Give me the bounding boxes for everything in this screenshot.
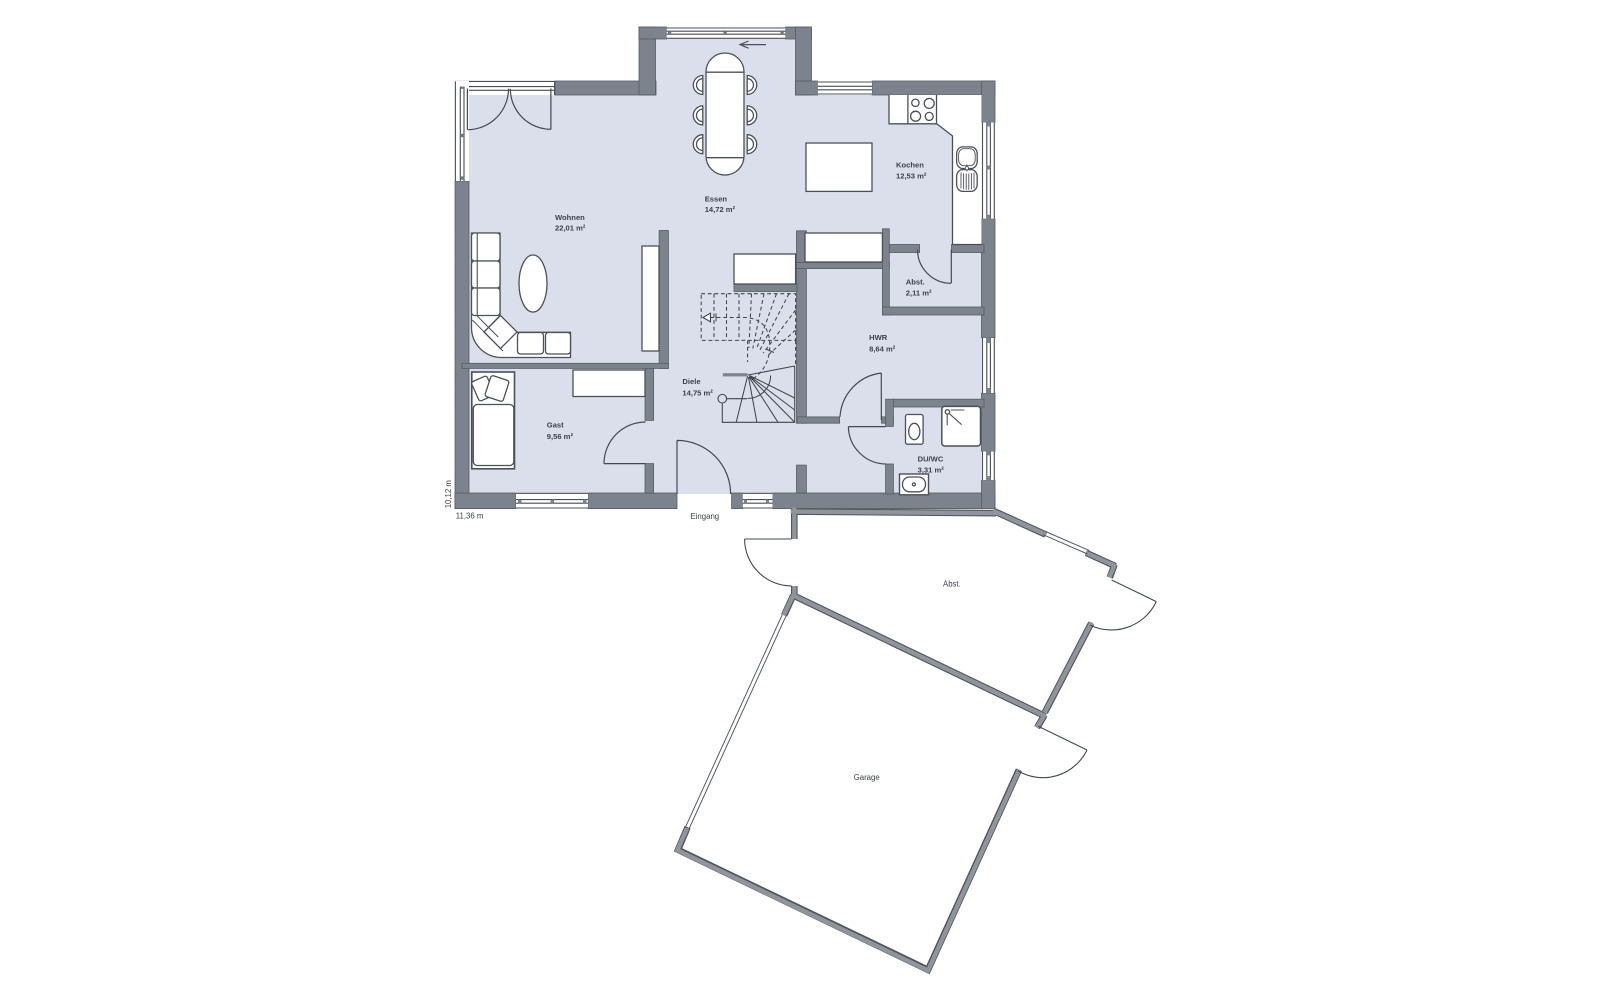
svg-text:Abst.: Abst.	[943, 579, 961, 588]
svg-text:2,11 m²: 2,11 m²	[906, 289, 932, 298]
svg-text:9,56 m²: 9,56 m²	[547, 432, 574, 441]
svg-text:Wohnen: Wohnen	[555, 213, 585, 222]
svg-text:Diele: Diele	[682, 377, 700, 386]
svg-text:11,36 m: 11,36 m	[456, 511, 484, 520]
svg-text:14,72 m²: 14,72 m²	[705, 205, 736, 214]
svg-text:14,75 m²: 14,75 m²	[682, 388, 713, 397]
svg-text:Eingang: Eingang	[691, 512, 720, 521]
svg-text:Kochen: Kochen	[896, 161, 924, 170]
svg-text:8,64 m²: 8,64 m²	[869, 344, 896, 353]
svg-text:Abst.: Abst.	[906, 278, 925, 287]
svg-text:Garage: Garage	[854, 773, 880, 782]
svg-text:10,12 m: 10,12 m	[444, 480, 453, 508]
svg-text:12,53 m²: 12,53 m²	[896, 172, 927, 181]
svg-text:22,01 m²: 22,01 m²	[555, 224, 586, 233]
svg-text:HWR: HWR	[869, 333, 888, 342]
svg-text:Essen: Essen	[705, 195, 728, 204]
svg-text:Gast: Gast	[547, 421, 564, 430]
svg-text:3,31 m²: 3,31 m²	[918, 466, 945, 475]
svg-text:DU/WC: DU/WC	[918, 455, 944, 464]
